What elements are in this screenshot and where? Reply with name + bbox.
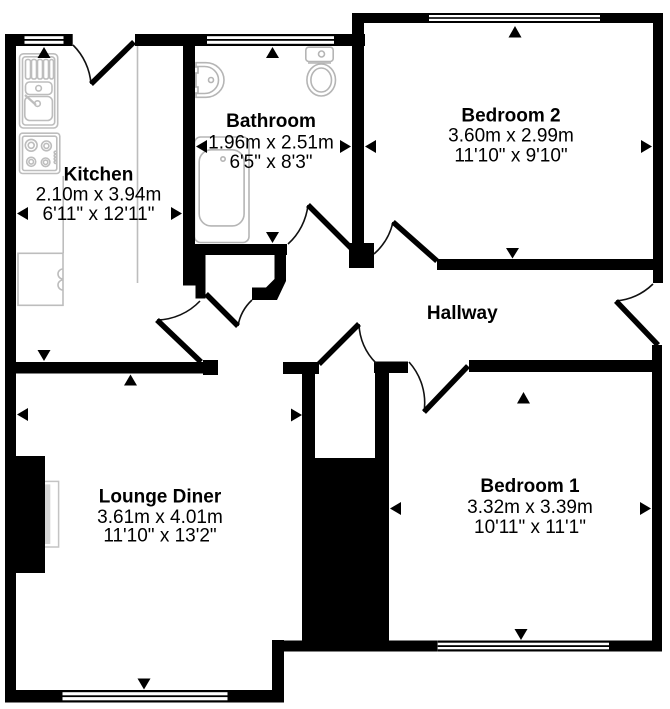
- svg-text:Bedroom 2: Bedroom 2: [461, 105, 560, 126]
- svg-text:3.60m x 2.99m: 3.60m x 2.99m: [448, 126, 574, 147]
- svg-text:11'10" x 13'2": 11'10" x 13'2": [103, 526, 216, 547]
- svg-text:Bedroom 1: Bedroom 1: [480, 476, 580, 497]
- svg-text:11'10" x 9'10": 11'10" x 9'10": [454, 145, 567, 166]
- svg-text:10'11" x 11'1": 10'11" x 11'1": [474, 517, 586, 538]
- svg-text:6'5" x 8'3": 6'5" x 8'3": [229, 152, 312, 173]
- svg-text:3.32m x 3.39m: 3.32m x 3.39m: [467, 497, 593, 518]
- svg-text:Lounge Diner: Lounge Diner: [99, 487, 222, 508]
- svg-text:6'11" x 12'11": 6'11" x 12'11": [43, 204, 155, 225]
- svg-text:Hallway: Hallway: [427, 303, 498, 324]
- svg-text:Kitchen: Kitchen: [64, 165, 134, 186]
- svg-text:Bathroom: Bathroom: [226, 111, 316, 132]
- svg-text:2.10m x 3.94m: 2.10m x 3.94m: [36, 184, 162, 205]
- svg-text:1.96m x 2.51m: 1.96m x 2.51m: [208, 133, 334, 154]
